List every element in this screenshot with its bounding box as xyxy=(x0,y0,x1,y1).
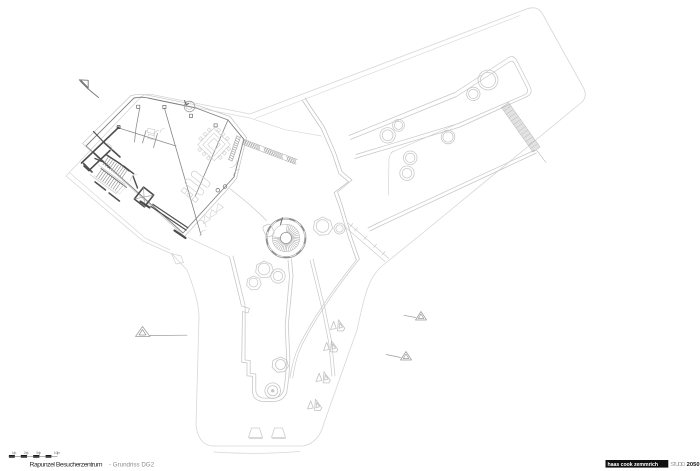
svg-text:Rapunzel Besucherzentrum: Rapunzel Besucherzentrum xyxy=(30,461,103,468)
svg-text:2m: 2m xyxy=(24,451,29,455)
svg-text:haas cook zemmrich: haas cook zemmrich xyxy=(608,462,659,468)
svg-text:- Grundriss DG2: - Grundriss DG2 xyxy=(109,462,155,469)
svg-text:1m: 1m xyxy=(12,451,17,455)
svg-text:2050: 2050 xyxy=(687,462,700,468)
svg-text:10m: 10m xyxy=(54,451,61,455)
svg-text:STUDIO: STUDIO xyxy=(670,462,685,468)
svg-text:5m: 5m xyxy=(36,451,41,455)
